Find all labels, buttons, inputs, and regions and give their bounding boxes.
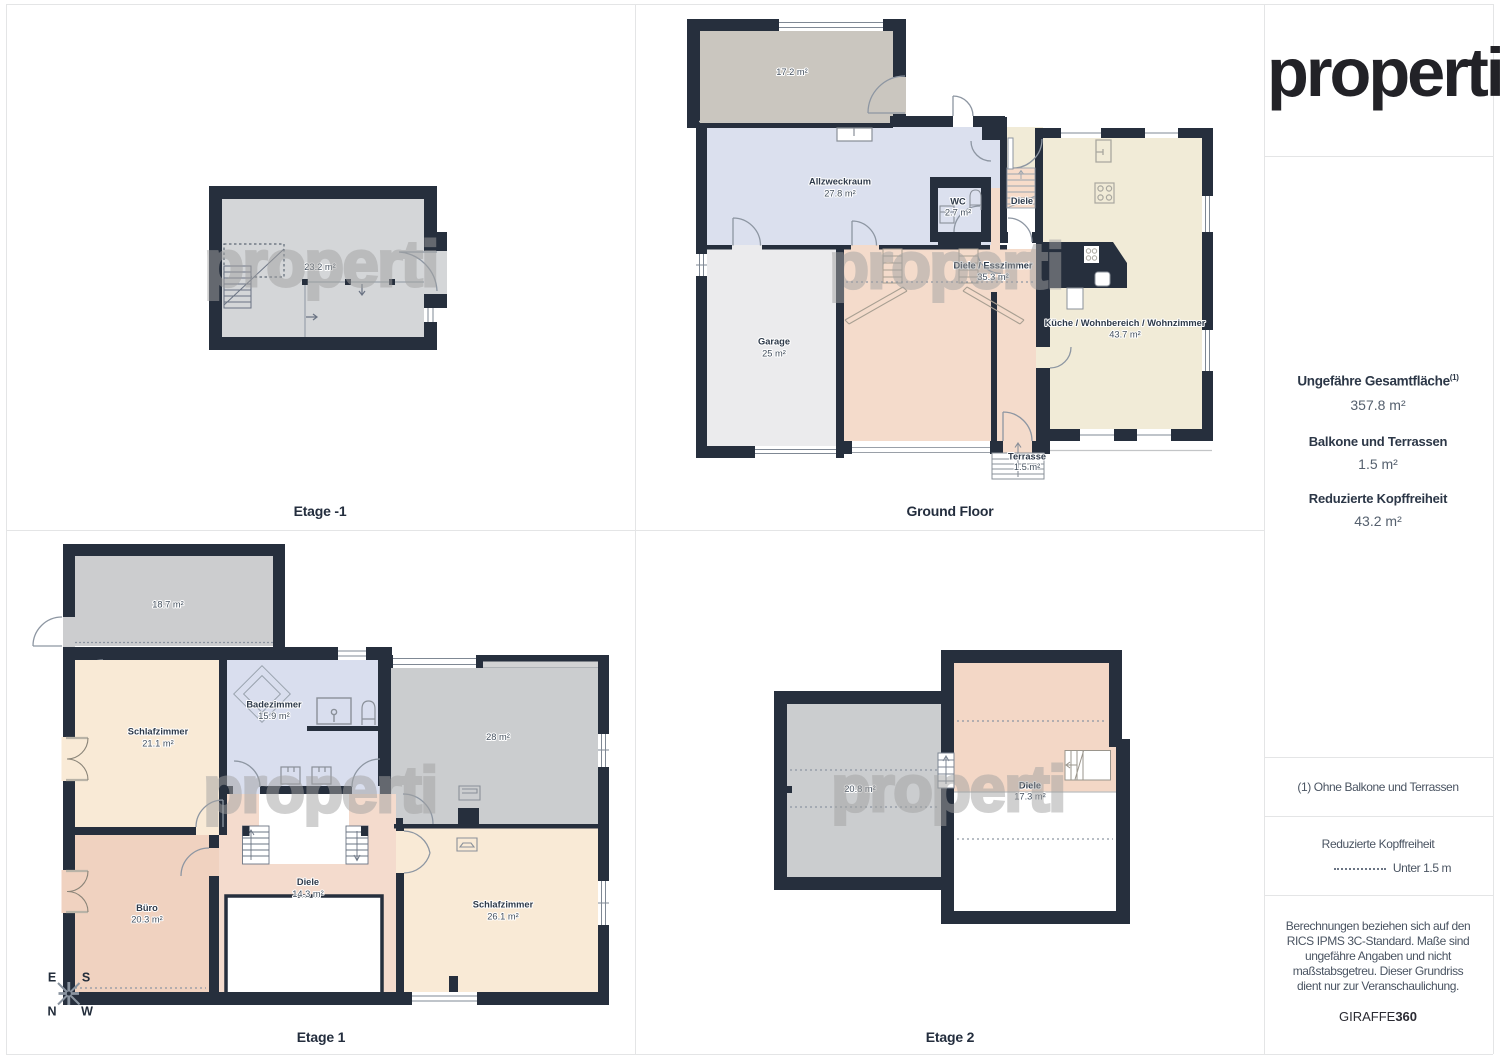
- svg-text:properti: properti: [831, 752, 1065, 825]
- svg-text:WC: WC: [950, 197, 966, 207]
- svg-text:26.1 m²: 26.1 m²: [487, 912, 519, 922]
- svg-text:Badezimmer: Badezimmer: [246, 700, 302, 710]
- svg-text:Schlafzimmer: Schlafzimmer: [128, 727, 189, 737]
- svg-text:2.7 m²: 2.7 m²: [945, 208, 971, 218]
- svg-text:18.7 m²: 18.7 m²: [152, 600, 184, 610]
- svg-text:S: S: [82, 971, 90, 985]
- svg-text:25 m²: 25 m²: [762, 348, 786, 358]
- svg-text:Allzweckraum: Allzweckraum: [809, 177, 871, 187]
- svg-text:20.3 m²: 20.3 m²: [131, 915, 163, 925]
- svg-text:properti: properti: [204, 227, 438, 300]
- svg-text:21.1 m²: 21.1 m²: [142, 739, 174, 749]
- svg-text:properti: properti: [203, 753, 437, 826]
- svg-text:N: N: [47, 1005, 56, 1019]
- svg-text:properti: properti: [829, 229, 1063, 302]
- svg-text:Schlafzimmer: Schlafzimmer: [473, 900, 534, 910]
- svg-text:Terrasse: Terrasse: [1008, 452, 1046, 462]
- svg-text:W: W: [81, 1005, 93, 1019]
- svg-text:14.3 m²: 14.3 m²: [292, 889, 324, 899]
- svg-text:Garage: Garage: [758, 337, 790, 347]
- svg-text:27.8 m²: 27.8 m²: [824, 189, 856, 199]
- svg-text:Diele: Diele: [1011, 196, 1033, 206]
- svg-text:15.9 m²: 15.9 m²: [258, 711, 290, 721]
- svg-text:17.2 m²: 17.2 m²: [776, 67, 808, 77]
- svg-text:43.7 m²: 43.7 m²: [1109, 329, 1141, 339]
- svg-text:Büro: Büro: [136, 903, 158, 913]
- svg-text:Diele: Diele: [297, 877, 319, 887]
- svg-text:1.5 m²: 1.5 m²: [1014, 462, 1040, 472]
- svg-text:28 m²: 28 m²: [486, 732, 510, 742]
- svg-text:Küche / Wohnbereich / Wohnzimm: Küche / Wohnbereich / Wohnzimmer: [1045, 318, 1206, 328]
- svg-text:E: E: [48, 971, 56, 985]
